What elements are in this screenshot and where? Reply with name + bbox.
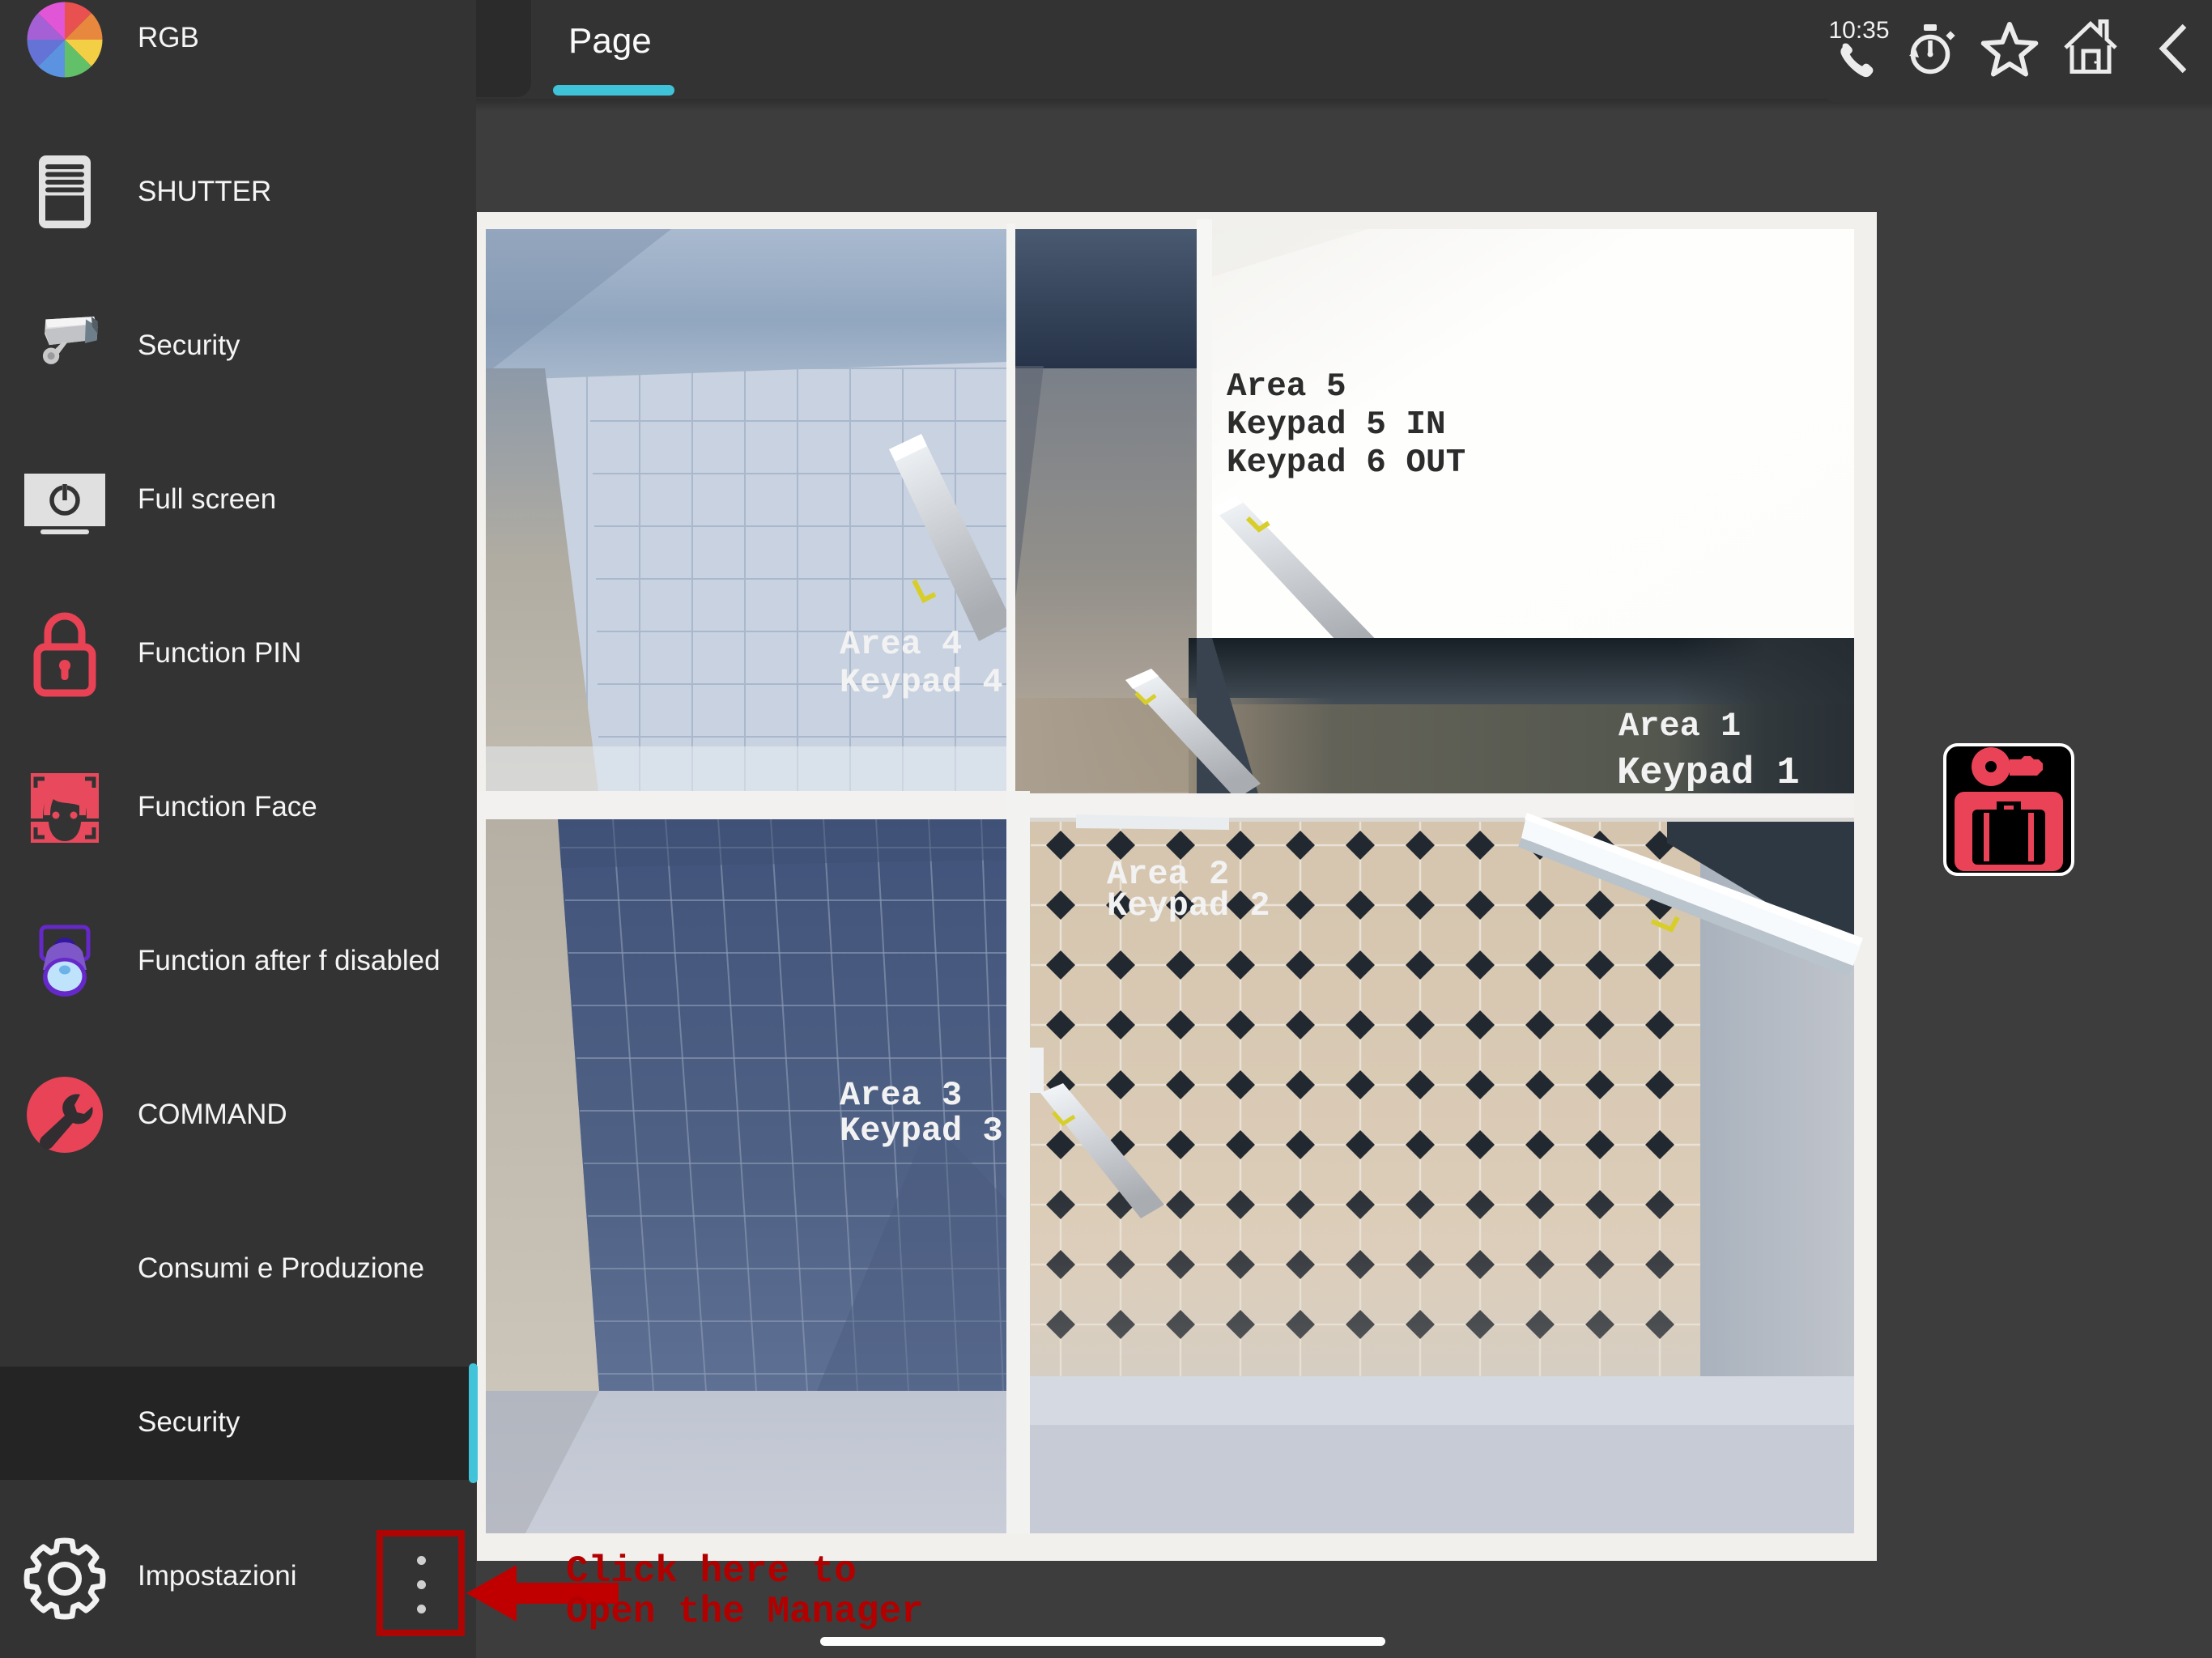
- svg-text:Keypad 2: Keypad 2: [1107, 886, 1270, 925]
- svg-text:Area 5: Area 5: [1227, 368, 1346, 406]
- svg-text:Area 3: Area 3: [840, 1076, 962, 1115]
- svg-text:Keypad 6 OUT: Keypad 6 OUT: [1227, 444, 1465, 482]
- svg-text:Keypad 5 IN: Keypad 5 IN: [1227, 406, 1446, 444]
- svg-text:Keypad 1: Keypad 1: [1617, 752, 1800, 795]
- svg-text:Keypad 3: Keypad 3: [840, 1112, 1003, 1150]
- svg-text:Keypad 4: Keypad 4: [840, 663, 1003, 702]
- svg-text:Area 4: Area 4: [840, 625, 962, 664]
- svg-text:Area 1: Area 1: [1619, 707, 1741, 746]
